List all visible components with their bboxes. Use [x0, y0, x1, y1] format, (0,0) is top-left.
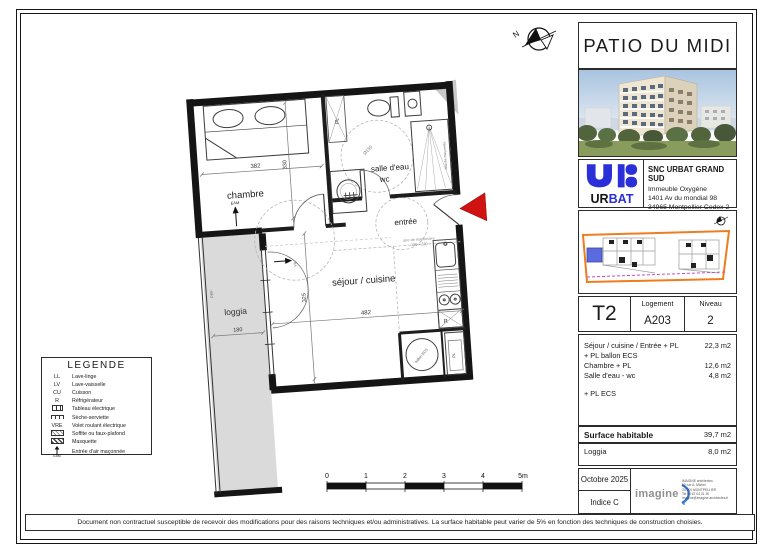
developer-box: URBAT SNC URBAT GRAND SUD Immeuble Oxygè…	[578, 159, 737, 208]
legend-item: Tableau électrique	[42, 405, 151, 413]
niveau-label: Niveau	[685, 297, 736, 310]
turning-circle-salle-deau	[339, 118, 416, 195]
north-compass-icon: N	[511, 28, 556, 50]
bed	[203, 99, 309, 160]
urbat-wordmark-blue: BAT	[609, 192, 634, 206]
legend-item: Masquette	[42, 438, 151, 446]
room-label-salle-deau: salle d'eau	[371, 162, 410, 174]
surface-row: Séjour / cuisine / Entrée + PL22,3 m2	[584, 341, 731, 351]
dimension-chambre	[195, 98, 327, 228]
air-inlet-chambre	[232, 206, 239, 226]
revision-date: Octobre 2025	[579, 469, 631, 491]
legend-box: LEGENDE LLLave-linge LVLave-vaisselle CU…	[41, 357, 152, 455]
project-title-box: PATIO DU MIDI	[578, 22, 737, 69]
developer-address-line: Immeuble Oxygène	[648, 186, 733, 195]
washbasin	[404, 91, 422, 116]
room-label-wc: wc	[379, 174, 390, 184]
revision-indice: Indice C	[579, 491, 631, 513]
site-compass-icon	[714, 216, 728, 225]
site-limit-line	[587, 272, 725, 277]
urbat-logo-u	[587, 164, 612, 187]
project-photo	[578, 69, 737, 157]
legend-item: EAM Entrée d'air maçonnée	[42, 446, 151, 459]
legend-item: Sèche-serviette	[42, 413, 151, 421]
unit-type: T2	[579, 297, 631, 331]
surface-loggia-box: Loggia 8,0 m2	[578, 443, 737, 466]
surface-row: + PL ballon ECS	[584, 351, 731, 361]
habitable-value: 39,7 m2	[704, 430, 731, 439]
entrance-arrow	[459, 193, 487, 223]
urbat-logo: URBAT	[583, 162, 641, 207]
ppf-label: PPF	[209, 290, 215, 299]
svg-text:5m: 5m	[518, 473, 528, 480]
revision-box: Octobre 2025 Indice C imagine IMAGINE ar…	[578, 468, 737, 514]
chambre-door	[292, 194, 326, 228]
disclaimer-text: Document non contractuel susceptible de …	[77, 519, 702, 526]
entry-closet-label: PL	[451, 352, 456, 358]
project-title: PATIO DU MIDI	[583, 35, 731, 57]
hatch-dark-icon	[51, 438, 64, 444]
logement-value: A203	[631, 310, 684, 331]
fridge-label: R	[444, 319, 448, 325]
legend-item: VREVolet roulant électrique	[42, 422, 151, 430]
legend-item: RRéfrigérateur	[42, 397, 151, 405]
dim-chambre-width: 382	[250, 163, 261, 170]
scale-bar: 0 1 2 3 4 5m	[325, 473, 528, 492]
toilet	[367, 97, 399, 119]
room-label-loggia: loggia	[224, 306, 248, 318]
dim-sejour-width: 482	[361, 310, 372, 317]
svg-text:URBAT: URBAT	[591, 192, 634, 206]
room-label-entree: entrée	[394, 217, 418, 228]
dim-loggia-width: 180	[233, 327, 243, 334]
towel-radiator-icon	[51, 415, 64, 419]
maneuver-area-line2: 120 x 220	[411, 242, 428, 247]
developer-name: SNC URBAT GRAND SUD	[648, 165, 733, 183]
svg-text:0: 0	[325, 473, 329, 480]
dim-chambre-height: 330	[282, 160, 289, 170]
svg-text:4: 4	[481, 473, 485, 480]
burner	[439, 295, 450, 306]
svg-text:2: 2	[403, 473, 407, 480]
developer-address-line: 1401 Av du mondial 98	[648, 195, 733, 204]
electric-panel-icon	[52, 405, 63, 411]
plan-sheet: 382 330 PL	[0, 0, 780, 551]
north-label: N	[511, 29, 521, 40]
svg-text:3: 3	[442, 473, 446, 480]
urbat-logo-b	[618, 164, 625, 187]
building-photo-illustration	[579, 70, 736, 156]
drainer	[438, 274, 459, 287]
site-plan-box	[578, 210, 737, 294]
surface-row: + PL ECS	[584, 389, 731, 399]
air-inlet-icon: EAM	[42, 446, 72, 458]
loggia-label: Loggia	[584, 447, 607, 465]
svg-text:1: 1	[364, 473, 368, 480]
legend-item: CUCuisson	[42, 389, 151, 397]
architect-contact: IMAGINE architectes 50 rue A. Michel 34 …	[682, 479, 733, 500]
legend-title: LEGENDE	[42, 358, 151, 371]
logement-label: Logement	[631, 297, 684, 310]
water-heater-label: ballon ECS	[414, 347, 429, 364]
unit-table: T2 Logement A203 Niveau 2	[578, 296, 737, 332]
habitable-label: Surface habitable	[584, 430, 653, 440]
legend-item: LVLave-vaisselle	[42, 381, 151, 389]
surface-habitable-box: Surface habitable 39,7 m2	[578, 426, 737, 443]
turning-circle-label: Ø150	[362, 144, 374, 156]
roller-shutter-marker	[274, 257, 292, 264]
legend-item: Soffite ou faux-plafond	[42, 430, 151, 438]
interior-walls	[253, 85, 470, 390]
hatch-light-icon	[51, 430, 64, 436]
loggia-value: 8,0 m2	[708, 447, 731, 465]
room-label-sejour: séjour / cuisine	[332, 273, 396, 288]
urbat-wordmark-black: UR	[591, 192, 609, 206]
roller-shutter-label: VR	[293, 261, 297, 267]
burner	[450, 294, 461, 305]
shower-label: douche maçonnée	[442, 141, 448, 169]
niveau-value: 2	[685, 310, 736, 331]
disclaimer-box: Document non contractuel susceptible de …	[25, 514, 755, 531]
placard-label: PL	[334, 117, 340, 124]
legend-item: LLLave-linge	[42, 373, 151, 381]
site-plan-thumbnail	[579, 211, 736, 293]
surface-row: Chambre + PL12,6 m2	[584, 361, 731, 371]
kitchen-sink	[435, 242, 456, 267]
site-unit-highlight	[587, 248, 602, 262]
entrance-door	[433, 195, 459, 227]
room-label-chambre: chambre	[227, 188, 265, 202]
site-buildings	[587, 238, 719, 273]
surface-row: Salle d'eau - wc4,8 m2	[584, 371, 731, 381]
surfaces-box: Séjour / cuisine / Entrée + PL22,3 m2 + …	[578, 334, 737, 426]
